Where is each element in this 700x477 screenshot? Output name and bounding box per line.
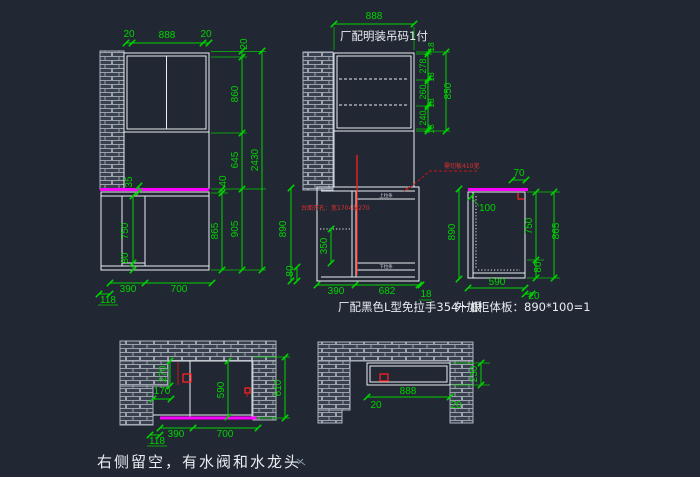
dim-label: 70 (513, 168, 525, 179)
brick-wall-column (303, 52, 333, 190)
hanger-note: 厂配明装吊码1付 (340, 29, 428, 43)
dim-label: 2430 (250, 148, 261, 171)
dim-label: 890 (278, 220, 289, 237)
board-note: 外加柜体板：890*100=1 (455, 300, 591, 314)
dim-label: 888 (366, 11, 383, 22)
dim-label: 865 (210, 222, 221, 239)
dim-label: 100 (479, 203, 496, 214)
dim-label: 750 (120, 222, 131, 239)
dim-label: 700 (217, 429, 234, 440)
dim-label: 645 (230, 151, 241, 168)
brick-wall (318, 410, 342, 423)
dim-label: 700 (171, 284, 188, 295)
brick-wall-column (100, 51, 124, 189)
rail-label: 下拉条 (379, 263, 393, 270)
dim-label: 80 (533, 261, 544, 273)
brick-wall (318, 361, 350, 410)
dim-label: 860 (230, 85, 241, 102)
dim-label: 240 (418, 110, 428, 125)
red-cut-note: 需切板410宽 (444, 162, 479, 170)
dim-label: 118 (100, 295, 116, 306)
dim-label: 888 (400, 386, 417, 397)
bottom-caption: 右侧留空，有水阀和水龙头 (97, 453, 301, 471)
dim-label: 18 (426, 42, 436, 52)
dim-label: 390 (168, 429, 185, 440)
dim-label: 390 (120, 284, 137, 295)
dim-label: 590 (489, 277, 506, 288)
brick-wall (318, 342, 473, 361)
dim-label: 118 (149, 436, 165, 447)
dim-label: 888 (159, 30, 176, 41)
dim-label: 20 (450, 400, 462, 411)
dim-label: 40 (218, 175, 229, 187)
dim-label: 230 (469, 365, 480, 382)
dim-label: 260 (418, 84, 428, 99)
dim-label: 80 (120, 252, 131, 264)
dim-label: 18 (426, 124, 436, 134)
red-sink-note: 台面开孔：宽1704深270 (301, 204, 370, 212)
brick-wall (120, 341, 276, 361)
dim-label: 20 (239, 38, 250, 50)
dim-label: 20 (123, 29, 135, 40)
dim-label: 905 (230, 220, 241, 237)
dim-label: 278 (418, 58, 428, 73)
dim-label: 18 (426, 72, 436, 82)
dim-label: 865 (551, 222, 562, 239)
dim-label: 20 (370, 400, 382, 411)
dim-label: 390 (328, 286, 345, 297)
cad-drawing-canvas: 20 888 20 40 865 20 860 645 905 2430 35 … (0, 0, 700, 477)
dim-label: 20 (200, 29, 212, 40)
dim-label: 850 (443, 82, 454, 99)
dim-label: 610 (273, 379, 284, 396)
dim-label: 270 (158, 365, 169, 382)
dim-label: 590 (216, 381, 227, 398)
dim-label: 170 (154, 386, 171, 397)
dim-label: 18 (426, 98, 436, 108)
dim-label: 682 (379, 286, 396, 297)
dim-label: 750 (524, 217, 535, 234)
dim-label: 35 (124, 176, 135, 188)
cad-svg: 20 888 20 40 865 20 860 645 905 2430 35 … (0, 0, 700, 477)
brick-wall (120, 386, 153, 425)
dim-label: 18 (420, 289, 432, 300)
dim-label: 890 (447, 223, 458, 240)
dim-label: 80 (285, 265, 296, 277)
rail-label: 上拉条 (379, 192, 393, 199)
dim-label: 350 (319, 237, 330, 254)
